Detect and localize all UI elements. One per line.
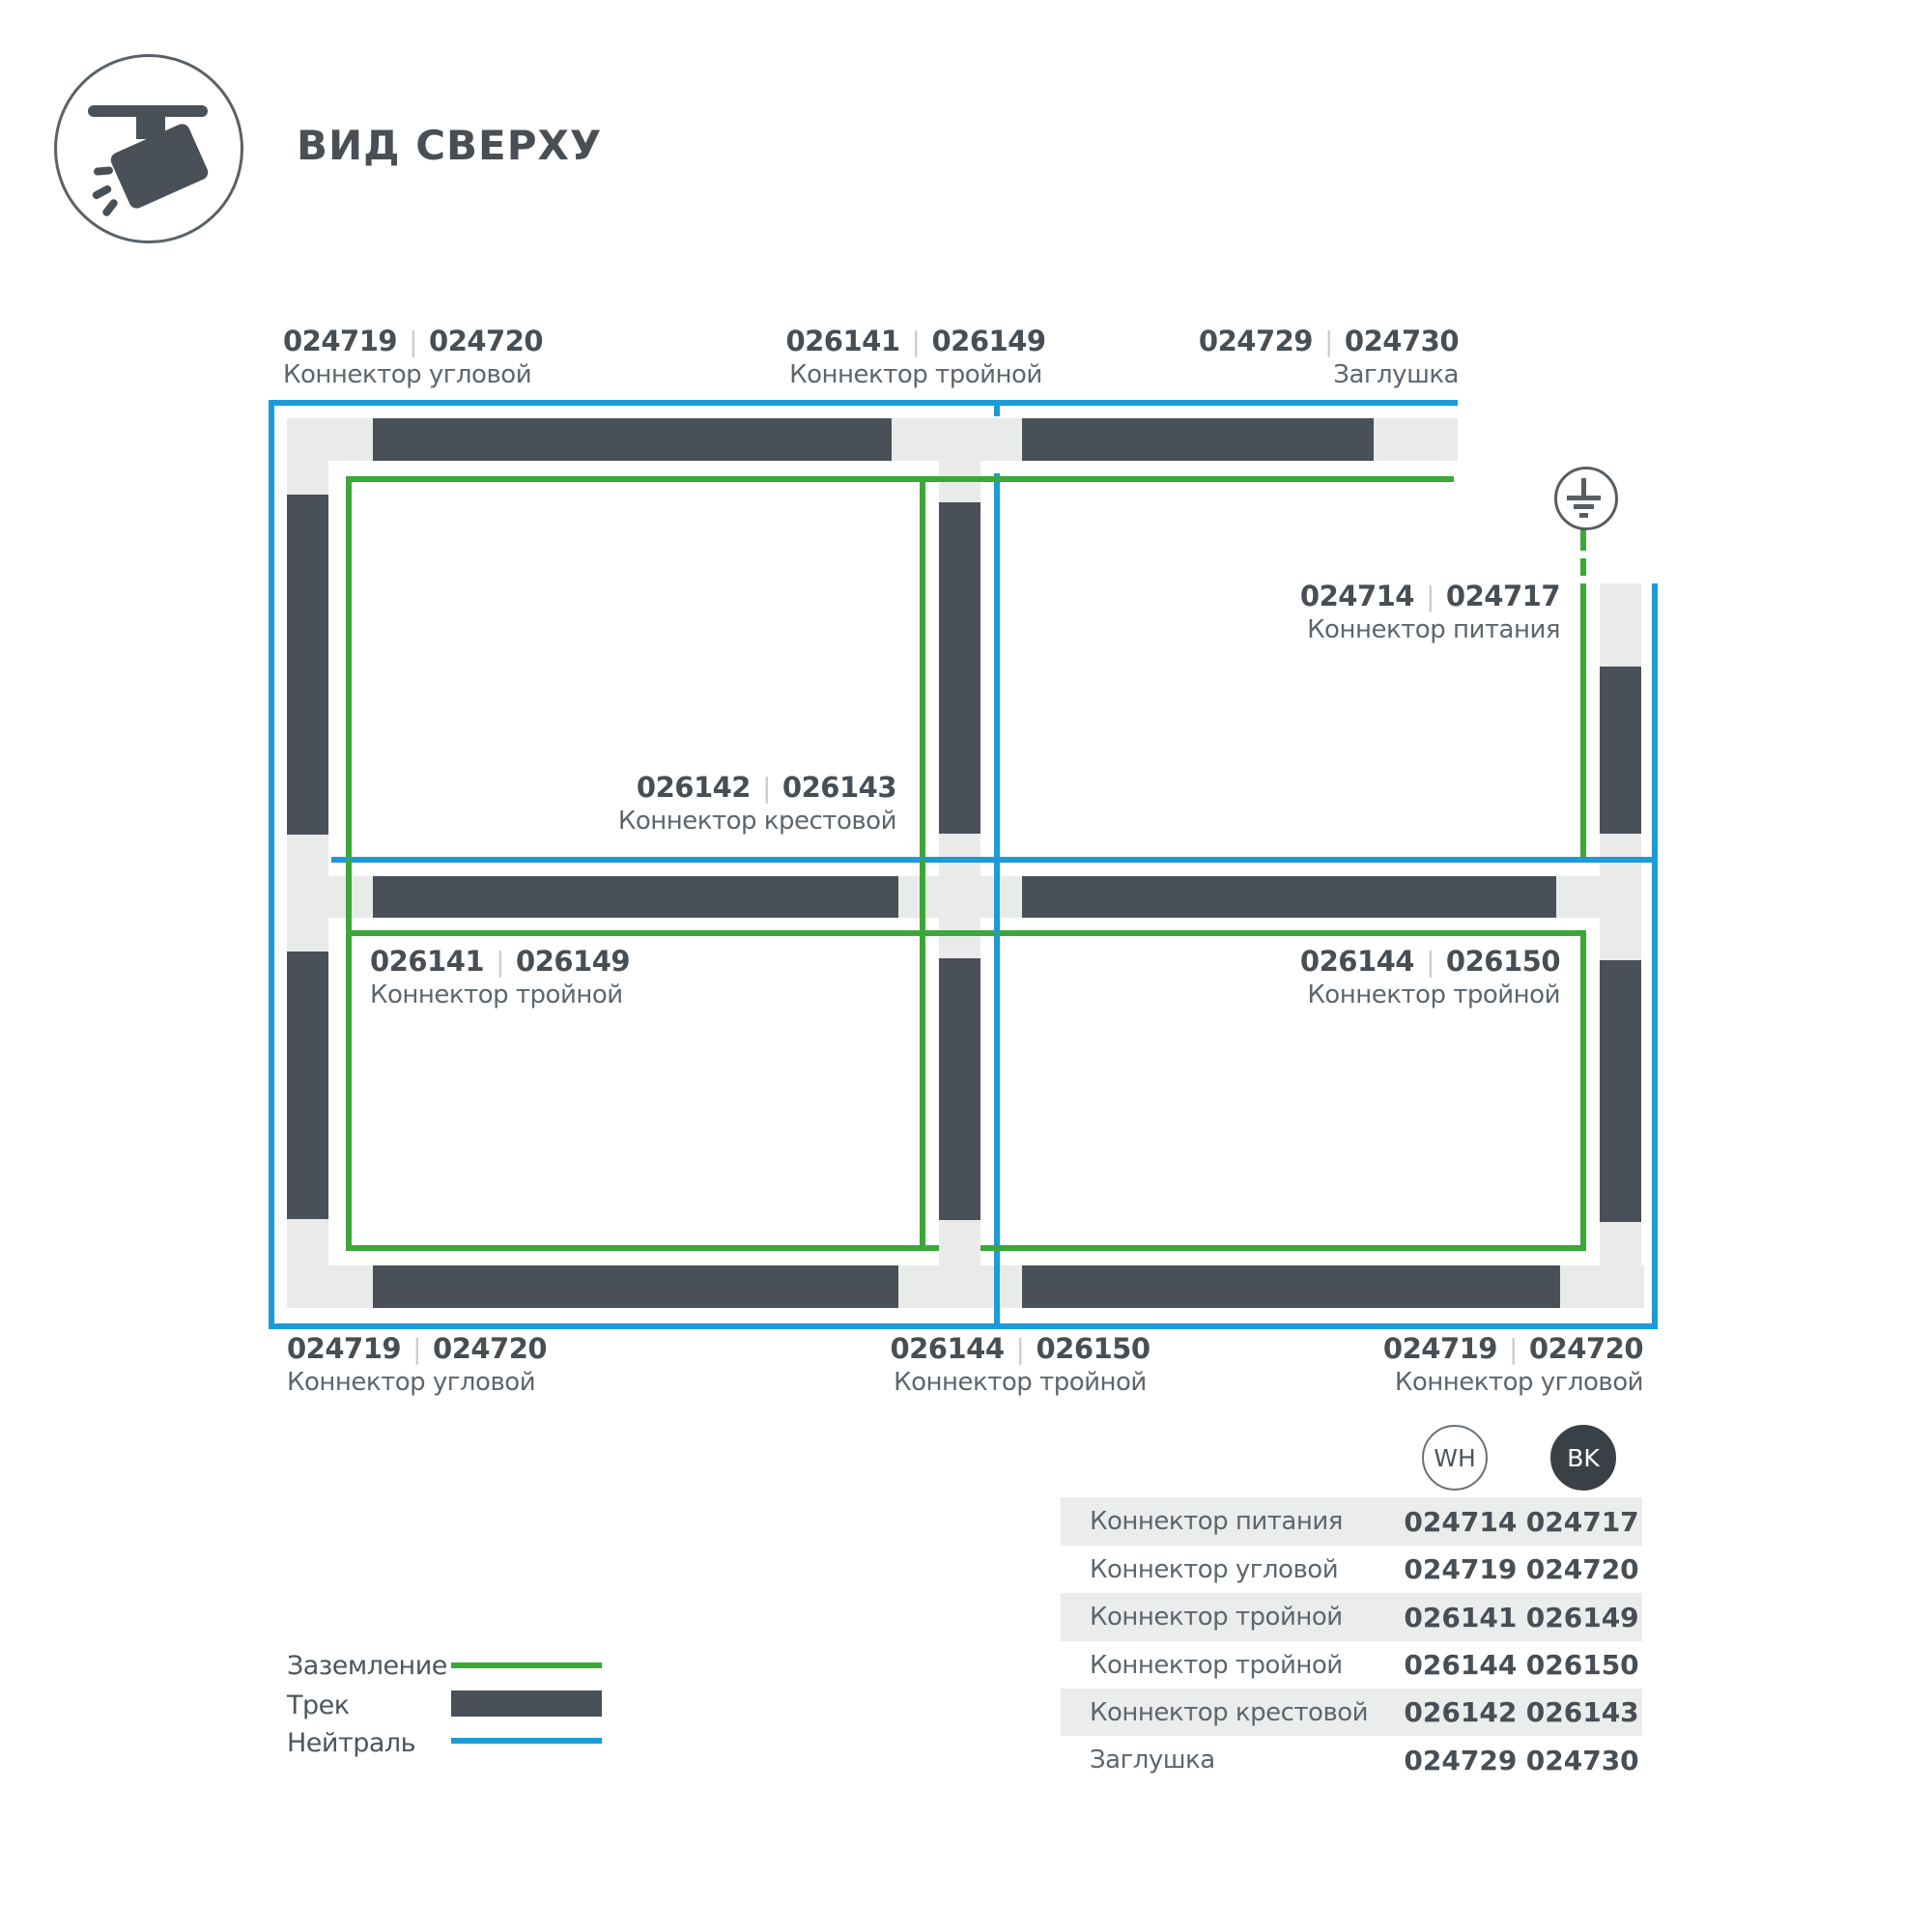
ground-line-feed-dash xyxy=(1580,529,1586,551)
label-connector-bottom-middle: 026144|026150 Коннектор тройной xyxy=(875,1334,1165,1397)
code-bk: 026143 xyxy=(782,771,896,804)
table-row: Коннектор питания 024714 024717 xyxy=(1061,1497,1642,1546)
page-title: ВИД СВЕРХУ xyxy=(297,122,602,169)
neutral-line-right-vert xyxy=(1652,583,1658,1329)
table-cell-bk: 026150 xyxy=(1522,1649,1642,1681)
legend-ground-swatch xyxy=(451,1662,602,1668)
ground-line-top xyxy=(923,476,1005,482)
bk-color-badge: BK xyxy=(1550,1425,1616,1491)
code-separator: | xyxy=(401,1333,433,1365)
ground-line-left xyxy=(346,860,352,933)
label-connector-bottom-left: 024719|024720 Коннектор угловой xyxy=(287,1334,547,1397)
label-caption: Коннектор крестовой xyxy=(618,807,896,836)
track-segment xyxy=(373,876,898,918)
label-caption: Коннектор тройной xyxy=(771,360,1061,389)
end-cap xyxy=(1374,418,1458,461)
cross-connector xyxy=(898,876,1022,918)
page: ВИД СВЕРХУ xyxy=(0,0,1932,1932)
table-cell-name: Заглушка xyxy=(1061,1746,1398,1775)
neutral-line-middle xyxy=(1541,857,1658,863)
label-caption: Коннектор тройной xyxy=(1300,980,1560,1009)
table-cell-name: Коннектор питания xyxy=(1061,1507,1398,1536)
triple-connector xyxy=(898,1265,1022,1308)
table-cell-wh: 024714 xyxy=(1398,1506,1522,1538)
table-cell-name: Коннектор тройной xyxy=(1061,1651,1398,1680)
code-bk: 024730 xyxy=(1345,325,1459,357)
code-separator: | xyxy=(751,772,782,804)
code-wh: 024729 xyxy=(1199,325,1313,357)
legend-neutral-label: Нейтраль xyxy=(287,1728,415,1758)
table-row: Коннектор тройной 026141 026149 xyxy=(1061,1593,1642,1641)
neutral-line-mid-vert xyxy=(994,860,1000,933)
light-ray xyxy=(91,185,112,201)
table-cell-bk: 024720 xyxy=(1522,1553,1642,1585)
track-segment xyxy=(1022,418,1374,461)
table-cell-wh: 024729 xyxy=(1398,1745,1522,1776)
track-segment xyxy=(373,418,892,461)
label-connector-mid-left: 026141|026149 Коннектор тройной xyxy=(370,947,630,1009)
code-bk: 026150 xyxy=(1036,1332,1150,1365)
table-cell-bk: 024730 xyxy=(1522,1745,1642,1776)
code-bk: 026149 xyxy=(516,945,630,978)
label-caption: Коннектор угловой xyxy=(1383,1368,1643,1397)
code-wh: 024719 xyxy=(1383,1332,1497,1365)
corner-connector xyxy=(1560,1265,1644,1308)
code-bk: 024720 xyxy=(433,1332,547,1365)
table-row: Коннектор угловой 024719 024720 xyxy=(1061,1546,1642,1593)
corner-connector xyxy=(287,1265,373,1308)
code-separator: | xyxy=(900,326,932,357)
track-segment xyxy=(287,495,328,835)
label-connector-bottom-right: 024719|024720 Коннектор угловой xyxy=(1383,1334,1643,1397)
code-bk: 024720 xyxy=(429,325,543,357)
code-bk: 024720 xyxy=(1529,1332,1643,1365)
triple-connector xyxy=(287,835,328,952)
table-cell-wh: 024719 xyxy=(1398,1553,1522,1585)
light-ray xyxy=(94,166,114,176)
neutral-line-middle xyxy=(923,857,1038,863)
label-endcap-top-right: 024729|024730 Заглушка xyxy=(1199,327,1459,389)
ground-line-top xyxy=(349,476,1454,482)
code-separator: | xyxy=(1005,1333,1037,1365)
table-cell-wh: 026141 xyxy=(1398,1602,1522,1634)
table-cell-bk: 024717 xyxy=(1522,1506,1642,1538)
code-wh: 026141 xyxy=(370,945,484,978)
code-wh: 024719 xyxy=(283,325,397,357)
label-caption: Коннектор тройной xyxy=(370,980,630,1009)
label-cross-connector: 026142|026143 Коннектор крестовой xyxy=(618,773,896,836)
triple-connector xyxy=(892,418,1022,461)
code-separator: | xyxy=(1414,581,1446,612)
wh-color-badge: WH xyxy=(1422,1425,1488,1491)
label-caption: Коннектор угловой xyxy=(283,360,543,389)
code-separator: | xyxy=(397,326,429,357)
corner-connector xyxy=(287,461,328,495)
label-caption: Заглушка xyxy=(1199,360,1459,389)
code-separator: | xyxy=(1414,946,1446,978)
table-cell-wh: 026142 xyxy=(1398,1696,1522,1728)
legend-neutral-swatch xyxy=(451,1738,602,1744)
table-cell-wh: 026144 xyxy=(1398,1649,1522,1681)
code-wh: 026142 xyxy=(637,771,751,804)
neutral-line-outer-left xyxy=(269,400,274,1329)
code-bk: 024717 xyxy=(1446,580,1560,612)
neutral-line-outer-top xyxy=(269,400,1458,406)
spot-body xyxy=(108,122,211,211)
label-connector-top-middle: 026141|026149 Коннектор тройной xyxy=(771,327,1061,389)
track-segment xyxy=(939,958,980,1220)
code-wh: 026144 xyxy=(890,1332,1004,1365)
code-wh: 026141 xyxy=(785,325,899,357)
neutral-line-mid-vert xyxy=(994,1252,1000,1326)
table-cell-name: Коннектор крестовой xyxy=(1061,1698,1398,1727)
track-segment xyxy=(1600,667,1641,834)
track-segment xyxy=(1022,876,1556,918)
track-spotlight-icon xyxy=(54,54,243,243)
label-connector-top-left: 024719|024720 Коннектор угловой xyxy=(283,327,543,389)
code-separator: | xyxy=(484,946,516,978)
track-segment xyxy=(1600,960,1641,1222)
legend-track-swatch xyxy=(451,1690,602,1717)
power-connector xyxy=(1600,583,1641,667)
table-row: Коннектор крестовой 026142 026143 xyxy=(1061,1689,1642,1736)
label-power-connector: 024714|024717 Коннектор питания xyxy=(1300,582,1560,644)
label-caption: Коннектор питания xyxy=(1300,615,1560,644)
legend-ground-label: Заземление xyxy=(287,1651,447,1681)
ground-line-mid xyxy=(920,860,925,933)
track-segment xyxy=(1022,1265,1560,1308)
code-bk: 026150 xyxy=(1446,945,1560,978)
neutral-line-mid-vert xyxy=(994,406,1000,416)
label-caption: Коннектор тройной xyxy=(875,1368,1165,1397)
table-cell-bk: 026149 xyxy=(1522,1602,1642,1634)
light-ray xyxy=(101,198,120,218)
neutral-line-outer-bottom xyxy=(269,1323,1658,1329)
corner-connector xyxy=(287,418,373,461)
code-bk: 026149 xyxy=(931,325,1045,357)
track-segment xyxy=(287,952,328,1219)
table-cell-name: Коннектор тройной xyxy=(1061,1603,1398,1632)
code-separator: | xyxy=(1497,1333,1529,1365)
label-caption: Коннектор угловой xyxy=(287,1368,547,1397)
earth-ground-icon xyxy=(1554,467,1618,530)
code-wh: 024719 xyxy=(287,1332,401,1365)
code-wh: 024714 xyxy=(1300,580,1414,612)
label-connector-mid-right: 026144|026150 Коннектор тройной xyxy=(1300,947,1560,1009)
triple-connector xyxy=(1556,876,1641,918)
table-cell-name: Коннектор угловой xyxy=(1061,1555,1398,1584)
table-cell-bk: 026143 xyxy=(1522,1696,1642,1728)
ground-line-lower-mid xyxy=(923,930,1038,936)
track-segment xyxy=(939,502,980,834)
table-row: Заглушка 024729 024730 xyxy=(1061,1736,1642,1784)
code-separator: | xyxy=(1313,326,1345,357)
track-segment xyxy=(373,1265,898,1308)
ground-line-feed-dash xyxy=(1580,558,1586,576)
legend-track-label: Трек xyxy=(287,1690,350,1720)
code-wh: 026144 xyxy=(1300,945,1414,978)
table-row: Коннектор тройной 026144 026150 xyxy=(1061,1641,1642,1689)
